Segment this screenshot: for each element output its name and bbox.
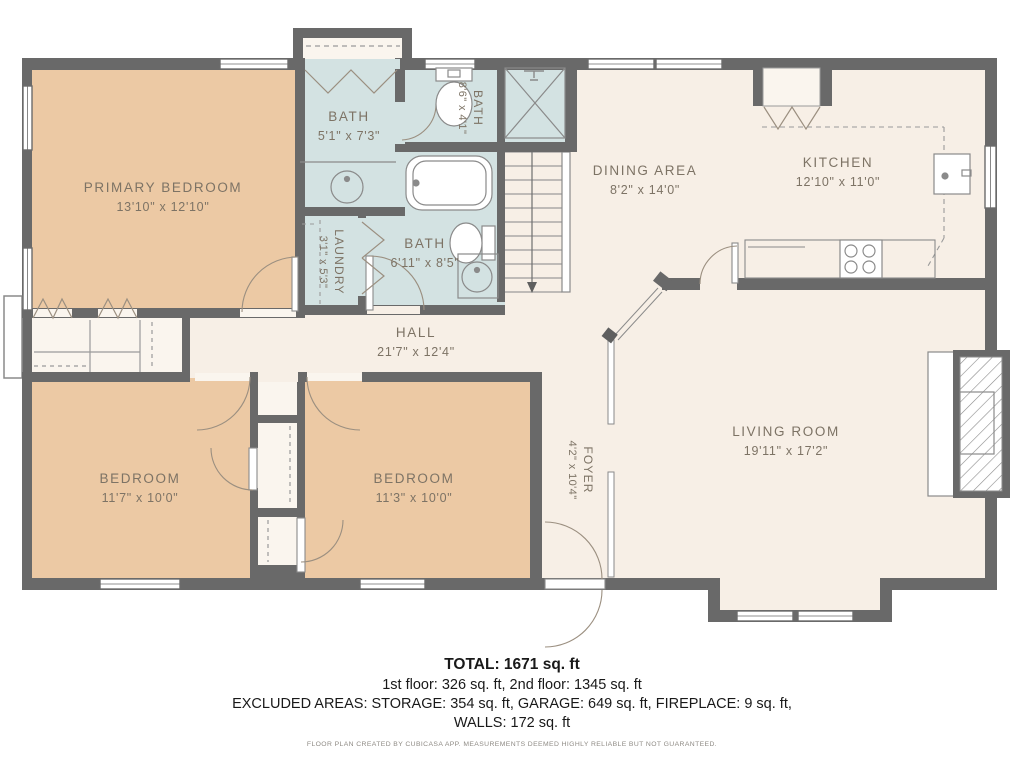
area-summary: TOTAL: 1671 sq. ft 1st floor: 326 sq. ft… [0, 656, 1024, 748]
bathtub-icon [406, 156, 492, 210]
room-label-bath-top: BATH 5'1" x 7'3" [318, 109, 380, 143]
floor-plan-drawing [0, 0, 1024, 768]
total-area: TOTAL: 1671 sq. ft [0, 656, 1024, 674]
exterior-nook [4, 296, 22, 378]
room-label-bath-small: BATH 8'6" x 4'1" [456, 82, 484, 135]
walls-area: WALLS: 172 sq. ft [0, 715, 1024, 731]
room-label-hall: HALL 21'7" x 12'4" [377, 325, 455, 359]
room-label-laundry: LAUNDRY 3'1" x 5'3" [317, 229, 345, 295]
stove-icon [840, 240, 882, 278]
kitchen-sink-icon [934, 154, 971, 194]
room-label-living-room: LIVING ROOM 19'11" x 17'2" [732, 424, 840, 458]
floor-areas: 1st floor: 326 sq. ft, 2nd floor: 1345 s… [0, 677, 1024, 693]
disclaimer: FLOOR PLAN CREATED BY CUBICASA APP. MEAS… [0, 741, 1024, 748]
closet-column-floor [252, 382, 302, 578]
pantry [763, 68, 820, 106]
room-label-bedroom-right: BEDROOM 11'3" x 10'0" [374, 471, 455, 505]
room-label-kitchen: KITCHEN 12'10" x 11'0" [796, 155, 880, 189]
storage-bump-floor [303, 38, 402, 60]
room-label-foyer: FOYER 4'2" x 10'4" [566, 440, 594, 499]
floor-plan: PRIMARY BEDROOM 13'10" x 12'10" BATH 5'1… [0, 0, 1024, 768]
fireplace-icon [928, 350, 1010, 498]
room-label-dining: DINING AREA 8'2" x 14'0" [593, 163, 698, 197]
room-label-bedroom-left: BEDROOM 11'7" x 10'0" [100, 471, 181, 505]
excluded-areas: EXCLUDED AREAS: STORAGE: 354 sq. ft, GAR… [0, 696, 1024, 712]
room-label-bath-main: BATH 6'11" x 8'5" [390, 236, 459, 270]
room-label-primary-bedroom: PRIMARY BEDROOM 13'10" x 12'10" [84, 180, 243, 214]
